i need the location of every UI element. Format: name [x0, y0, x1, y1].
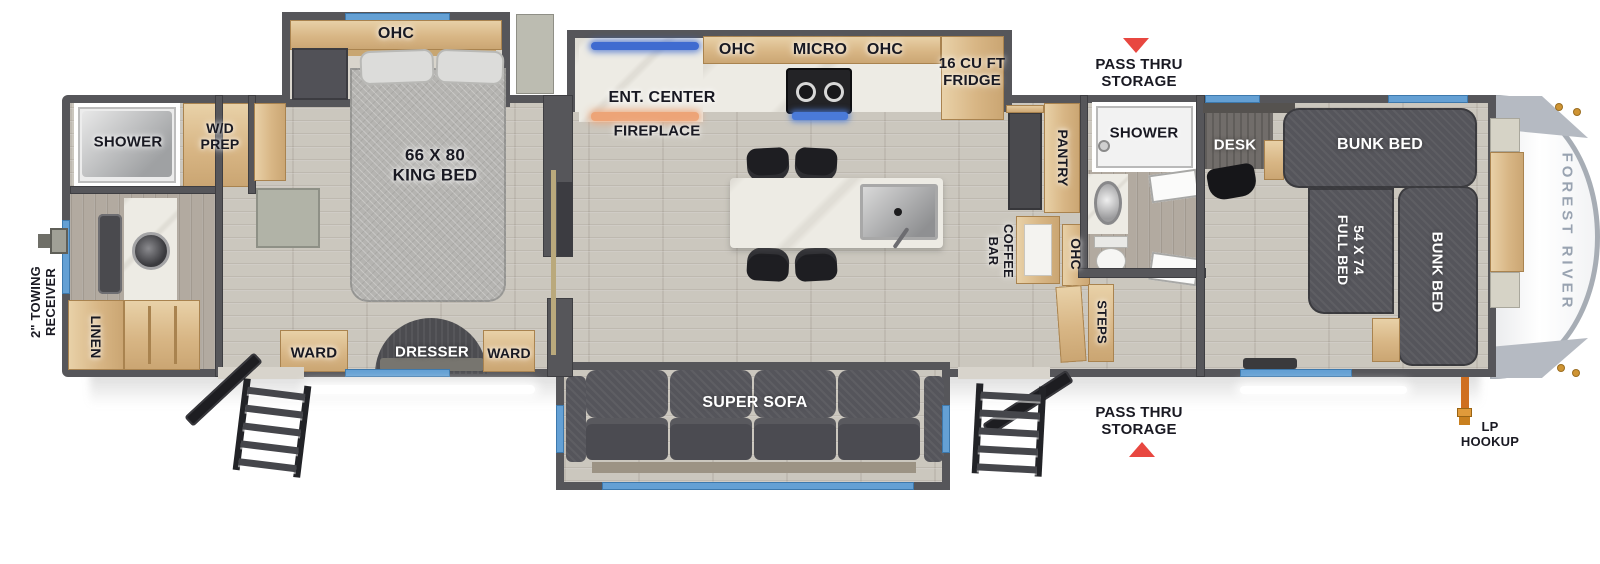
oven-light-strip [792, 112, 848, 120]
super-sofa-label: SUPER SOFA [702, 394, 807, 412]
full-bed-line2: FULL BED [1335, 215, 1351, 286]
ohc-coffee-label: OHC [1068, 238, 1084, 270]
coffee-bar-front [1024, 224, 1052, 276]
island-chair [746, 247, 790, 282]
towing-line2: RECEIVER [43, 268, 58, 336]
sofa-seat-cushion [586, 418, 668, 460]
mid-shower-label: SHOWER [1110, 124, 1179, 141]
pass-thru-bottom-line2: STORAGE [1101, 421, 1176, 438]
coffee-counter-dark [1008, 112, 1042, 210]
sofa-back-cushion [838, 370, 920, 418]
top-window [1388, 95, 1468, 103]
hitch-receiver [50, 228, 68, 254]
towing-receiver-label: 2" TOWING RECEIVER [29, 266, 59, 338]
steps-tread [1055, 285, 1086, 363]
front-wardrobe [1490, 152, 1524, 272]
wall-segment [1078, 268, 1206, 278]
coffee-bar-label: COFFEE BAR [985, 224, 1015, 278]
sofa-seat-cushion [754, 418, 836, 460]
front-panel [1490, 118, 1520, 152]
entry-steps-left [233, 378, 312, 478]
mid-shower-head [1098, 140, 1110, 152]
pass-thru-bottom-label: PASS THRU STORAGE [1095, 404, 1182, 439]
pass-thru-top-line2: STORAGE [1101, 73, 1176, 90]
bedroom-nightstand [292, 48, 348, 100]
island-sink-drain [894, 208, 902, 216]
desk-side-cabinet [1264, 140, 1284, 180]
sofa-back-cushion [586, 370, 668, 418]
bedroom-side-cabinet [254, 103, 286, 181]
lp-hose [1461, 377, 1469, 411]
coffee-counter-top [1006, 105, 1044, 113]
lp-connector [1457, 408, 1472, 417]
ent-center-led [591, 42, 699, 50]
coffee-bar-line2: BAR [986, 237, 1001, 266]
fridge-line2: FRIDGE [943, 72, 1001, 89]
king-bed [350, 68, 506, 302]
stove-burner [796, 82, 816, 102]
lp-line2: HOOKUP [1461, 434, 1519, 449]
ent-center-counter [579, 38, 703, 122]
rear-vanity-mirror [98, 214, 122, 294]
island-chair [746, 147, 790, 182]
fireplace-label: FIREPLACE [614, 122, 701, 139]
entry-steps-right [972, 383, 1047, 477]
floorplan-canvas: 2" TOWING RECEIVER SHOWER W/D PREP LINEN… [0, 0, 1600, 564]
entry-door-gap [958, 367, 1050, 379]
sofa-seat-cushion [838, 418, 920, 460]
bedroom-bottom-window [345, 369, 450, 377]
slide-side-panel [516, 14, 554, 94]
ward-right-label: WARD [487, 345, 531, 361]
rear-shower-label: SHOWER [94, 133, 163, 150]
cap-rivet [1556, 104, 1562, 110]
pillow [435, 49, 504, 85]
dresser-label: DRESSER [395, 343, 469, 360]
full-bed-line1: 54 X 74 [1351, 225, 1367, 275]
cap-rivet [1573, 370, 1579, 376]
bath-cabinet-door-line [148, 306, 151, 364]
bath-cabinets [124, 300, 200, 370]
bunk-bed-top-label: BUNK BED [1337, 136, 1423, 154]
king-bed-label: 66 X 80 KING BED [393, 145, 478, 184]
wall-segment [1196, 95, 1205, 377]
sofa-slide-window [602, 482, 914, 490]
front-panel [1490, 272, 1520, 308]
mid-bath-sink [1094, 181, 1122, 225]
cap-rivet [1558, 365, 1564, 371]
pass-thru-bottom-line1: PASS THRU [1095, 404, 1182, 421]
wd-prep-line2: PREP [201, 136, 240, 152]
fireplace-strip [591, 112, 699, 121]
linen-label: LINEN [88, 316, 104, 359]
pillow [359, 49, 434, 86]
fridge-label: 16 CU FT FRIDGE [939, 55, 1006, 90]
sofa-armrest [924, 376, 944, 462]
toilet-tank [1094, 236, 1128, 248]
steps-label: STEPS [1094, 300, 1109, 344]
pass-thru-arrow-bottom [1129, 442, 1155, 457]
ohc-kitchen-right-label: OHC [867, 41, 903, 59]
wd-prep-line1: W/D [206, 120, 234, 136]
sofa-slide-window-right [942, 405, 950, 453]
cap-rivet [1574, 109, 1580, 115]
top-window [1205, 95, 1260, 103]
king-bed-line1: 66 X 80 [405, 145, 465, 164]
pass-thru-top-label: PASS THRU STORAGE [1095, 56, 1182, 91]
bunk-nightstand [1372, 318, 1400, 362]
desk-counter-strip [1203, 103, 1295, 113]
island-chair [794, 247, 838, 282]
sofa-seat-cushion [670, 418, 752, 460]
brand-label: FOREST RIVER [1558, 153, 1575, 312]
ward-left-label: WARD [291, 344, 338, 361]
bedroom-ohc-label: OHC [378, 25, 414, 43]
bunk-bed-right-label: BUNK BED [1428, 232, 1445, 313]
wd-prep-label: W/D PREP [201, 120, 240, 152]
rear-vanity-sink [132, 232, 170, 270]
bath-cabinet-door-line [174, 306, 177, 364]
awning-light [1240, 386, 1407, 394]
pass-thru-top-line1: PASS THRU [1095, 56, 1182, 73]
pass-thru-arrow-top [1123, 38, 1149, 53]
ohc-kitchen-left-label: OHC [719, 41, 755, 59]
coffee-bar-line1: COFFEE [1001, 224, 1016, 278]
micro-label: MICRO [793, 41, 847, 59]
lp-hookup-label: LP HOOKUP [1461, 420, 1519, 450]
sofa-slide-window-left [556, 405, 564, 453]
sofa-armrest [566, 376, 586, 462]
desk-label: DESK [1214, 136, 1256, 153]
sliding-door-track [551, 170, 556, 355]
wall-segment [70, 186, 222, 194]
ent-center-label: ENT. CENTER [608, 89, 715, 107]
towing-line1: 2" TOWING [28, 266, 43, 338]
king-bed-line2: KING BED [393, 165, 478, 184]
island-chair [794, 147, 838, 182]
pantry-label: PANTRY [1055, 129, 1071, 186]
lp-line1: LP [1481, 419, 1498, 434]
sofa-base-trim [592, 462, 916, 473]
bottom-window [1240, 369, 1352, 377]
sliding-door-panel [557, 182, 573, 256]
fridge-line1: 16 CU FT [939, 55, 1006, 72]
bedroom-bench [256, 188, 320, 248]
full-bed-label: 54 X 74 FULL BED [1335, 215, 1367, 286]
awning-light [305, 385, 535, 394]
stove-burner [824, 82, 844, 102]
bunk-floor-step [1243, 358, 1297, 369]
